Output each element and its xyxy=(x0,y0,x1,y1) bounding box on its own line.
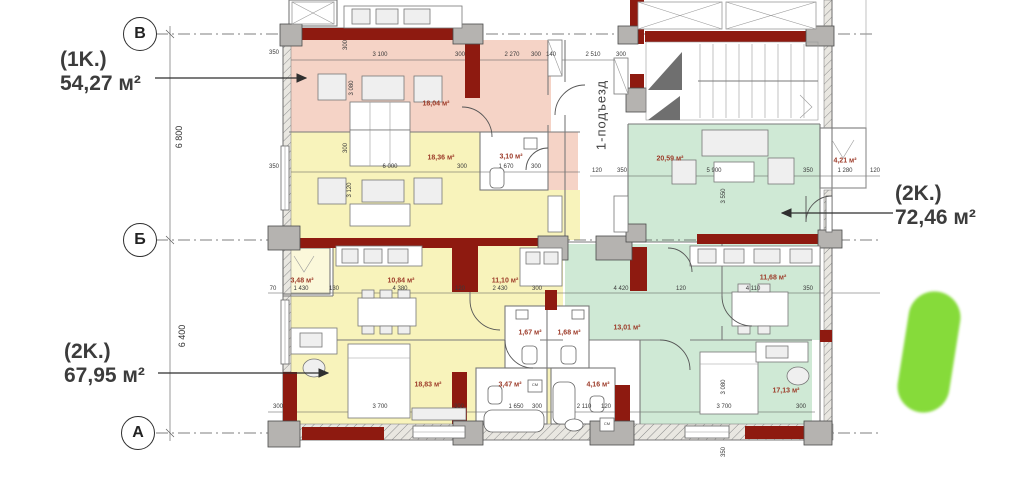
dimension-label: 1 280 xyxy=(837,168,852,174)
dimension-label: 300 xyxy=(796,404,806,410)
apartment-label-1k: (1K.) 54,27 м² xyxy=(60,48,141,96)
dimension-label: 300 xyxy=(532,286,542,292)
dimension-label: 2 270 xyxy=(504,52,519,58)
room-area-label: 1,67 м² xyxy=(518,330,541,337)
axis-row-b-label: Б xyxy=(134,231,146,249)
apartment-2k-left-type: (2K.) xyxy=(64,340,145,364)
dimension-label: 120 xyxy=(601,404,611,410)
dimension-label: 70 xyxy=(270,286,277,292)
axis-row-a: А xyxy=(121,416,155,450)
axis-row-b: Б xyxy=(123,223,157,257)
dimension-label: 350 xyxy=(269,50,279,56)
room-area-label: 3,48 м² xyxy=(290,278,313,285)
dimension-label: 3 550 xyxy=(721,188,727,203)
room-area-label: 20,59 м² xyxy=(657,156,684,163)
room-area-label: 17,13 м² xyxy=(773,388,800,395)
room-area-label: 10,84 м² xyxy=(388,278,415,285)
axis-row-v: В xyxy=(123,17,157,51)
dimension-label: 300 xyxy=(531,52,541,58)
entrance-label: 1-подъезд xyxy=(594,80,609,150)
dimension-label: 2 430 xyxy=(492,286,507,292)
dimension-label: СМ xyxy=(532,383,538,387)
room-area-label: 18,04 м² xyxy=(423,101,450,108)
dimension-label: 300 xyxy=(454,404,464,410)
dimension-label: 4 380 xyxy=(392,286,407,292)
room-area-label: 4,16 м² xyxy=(586,382,609,389)
room-area-label: 3,47 м² xyxy=(498,382,521,389)
apartment-label-2k-right: (2K.) 72,46 м² xyxy=(895,182,976,230)
dimension-label: 130 xyxy=(329,286,339,292)
dimension-label: 300 xyxy=(616,52,626,58)
apartment-2k-right-type: (2K.) xyxy=(895,182,976,206)
apartment-2k-right-area: 72,46 м² xyxy=(895,206,976,230)
stair-ramp-lower xyxy=(648,96,680,120)
axis-dim-vb: 6 800 xyxy=(174,126,184,149)
dimension-label: 3 080 xyxy=(349,80,355,95)
dimension-label: 1 670 xyxy=(498,164,513,170)
dimension-label: 6 000 xyxy=(382,164,397,170)
dimension-label: 120 xyxy=(870,168,880,174)
floorplan-page: В Б А 6 800 6 400 (1K.) 54,27 м² (2K.) 6… xyxy=(0,0,1024,485)
dimension-label: 3 100 xyxy=(372,52,387,58)
dimension-label: 4 420 xyxy=(613,286,628,292)
dimension-label: 2 110 xyxy=(577,404,592,410)
axis-row-v-label: В xyxy=(134,25,146,43)
dimension-label: 300 xyxy=(273,404,283,410)
dimension-label: 2 510 xyxy=(585,52,600,58)
apartment-label-2k-left: (2K.) 67,95 м² xyxy=(64,340,145,388)
dimension-label: 4 110 xyxy=(746,286,761,292)
dimension-label: 350 xyxy=(721,447,727,457)
room-hall-1k xyxy=(548,132,578,190)
dimension-label: 5 900 xyxy=(706,168,721,174)
dimension-label: 350 xyxy=(803,286,813,292)
dimension-label: 1 650 xyxy=(508,404,523,410)
dimension-label: 300 xyxy=(455,52,465,58)
axis-dim-ba: 6 400 xyxy=(177,325,187,348)
room-area-label: 11,10 м² xyxy=(492,278,519,285)
dimension-label: 120 xyxy=(676,286,686,292)
room-area-label: 1,68 м² xyxy=(557,330,580,337)
room-area-label: 18,83 м² xyxy=(415,382,442,389)
dimension-label: 350 xyxy=(617,168,627,174)
room-area-label: 11,68 м² xyxy=(760,275,787,282)
dimension-label: 3 080 xyxy=(721,379,727,394)
dimension-label: 300 xyxy=(532,404,542,410)
dimension-label: 120 xyxy=(455,286,465,292)
stairs xyxy=(646,42,818,120)
dimension-label: 1 430 xyxy=(293,286,308,292)
axis-row-a-label: А xyxy=(132,424,144,442)
apartment-2k-left-area: 67,95 м² xyxy=(64,364,145,388)
dimension-label: 350 xyxy=(269,164,279,170)
apartment-1k-type: (1K.) xyxy=(60,48,141,72)
dimension-label: 300 xyxy=(457,164,467,170)
dimension-label: 3 700 xyxy=(372,404,387,410)
dimension-label: 3 700 xyxy=(716,404,731,410)
dimension-label: 3 120 xyxy=(347,182,353,197)
dimension-label: СМ xyxy=(604,422,610,426)
room-area-label: 3,10 м² xyxy=(499,154,522,161)
room-area-label: 18,36 м² xyxy=(428,155,455,162)
dimension-label: 300 xyxy=(343,40,349,50)
dimension-label: 350 xyxy=(803,168,813,174)
room-area-label: 13,01 м² xyxy=(614,325,641,332)
dimension-label: 300 xyxy=(343,143,349,153)
dimension-label: 140 xyxy=(546,52,556,58)
room-area-label: 4,21 м² xyxy=(833,158,856,165)
stair-ramp-upper xyxy=(648,52,682,90)
apartment-1k-area: 54,27 м² xyxy=(60,72,141,96)
dimension-label: 300 xyxy=(531,164,541,170)
dimension-label: 120 xyxy=(592,168,602,174)
